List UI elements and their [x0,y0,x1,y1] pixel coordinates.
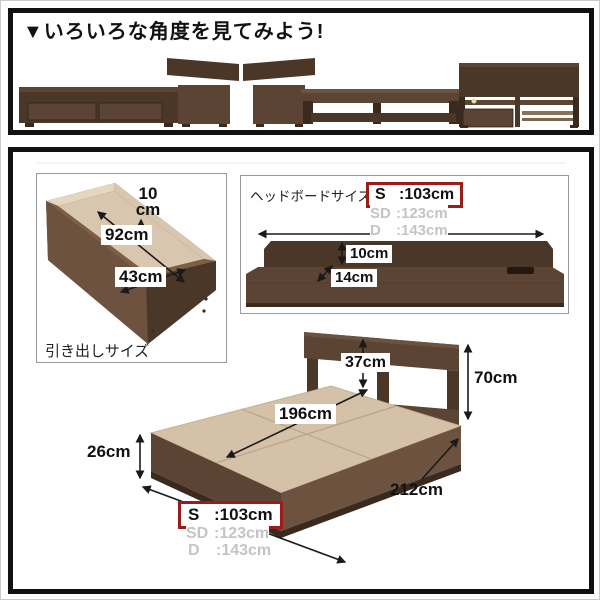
size-value: :143cm [396,222,448,239]
headboard-size-d: D :143cm [370,222,448,239]
headboard-height-label: 70cm [474,368,517,388]
size-label: SD [370,205,396,222]
size-label: S [188,505,214,525]
size-value: :143cm [216,542,271,560]
bed-size-sd: SD :123cm [186,525,269,543]
drawer-length-label: 92cm [101,225,152,245]
size-value: :103cm [214,505,273,525]
total-length-label: 212cm [390,480,443,500]
size-value: :123cm [396,205,448,222]
size-label: D [188,542,216,560]
frame-height-label: 26cm [87,442,130,462]
headboard-size-sd: SD :123cm [370,205,448,222]
size-label: SD [186,525,214,543]
bed-size-d: D :143cm [188,542,271,560]
headboard-shelf-depth-label: 14cm [331,269,377,287]
size-value: :103cm [399,186,454,204]
shelf-clearance-label: 37cm [341,353,390,372]
headboard-back-height-label: 10cm [346,245,392,263]
size-label: D [370,222,396,239]
product-size-sheet: ▼いろいろな角度を見てみよう! [0,0,600,600]
inner-length-label: 196cm [275,404,336,424]
size-value: :123cm [214,525,269,543]
section-title: ▼いろいろな角度を見てみよう! [23,15,324,44]
headboard-panel-title: ヘッドボードサイズ [250,185,371,205]
size-label: S [375,186,399,204]
drawer-caption: 引き出しサイズ [45,340,149,361]
drawer-height-unit: cm [131,200,165,220]
drawer-width-label: 43cm [115,267,166,287]
